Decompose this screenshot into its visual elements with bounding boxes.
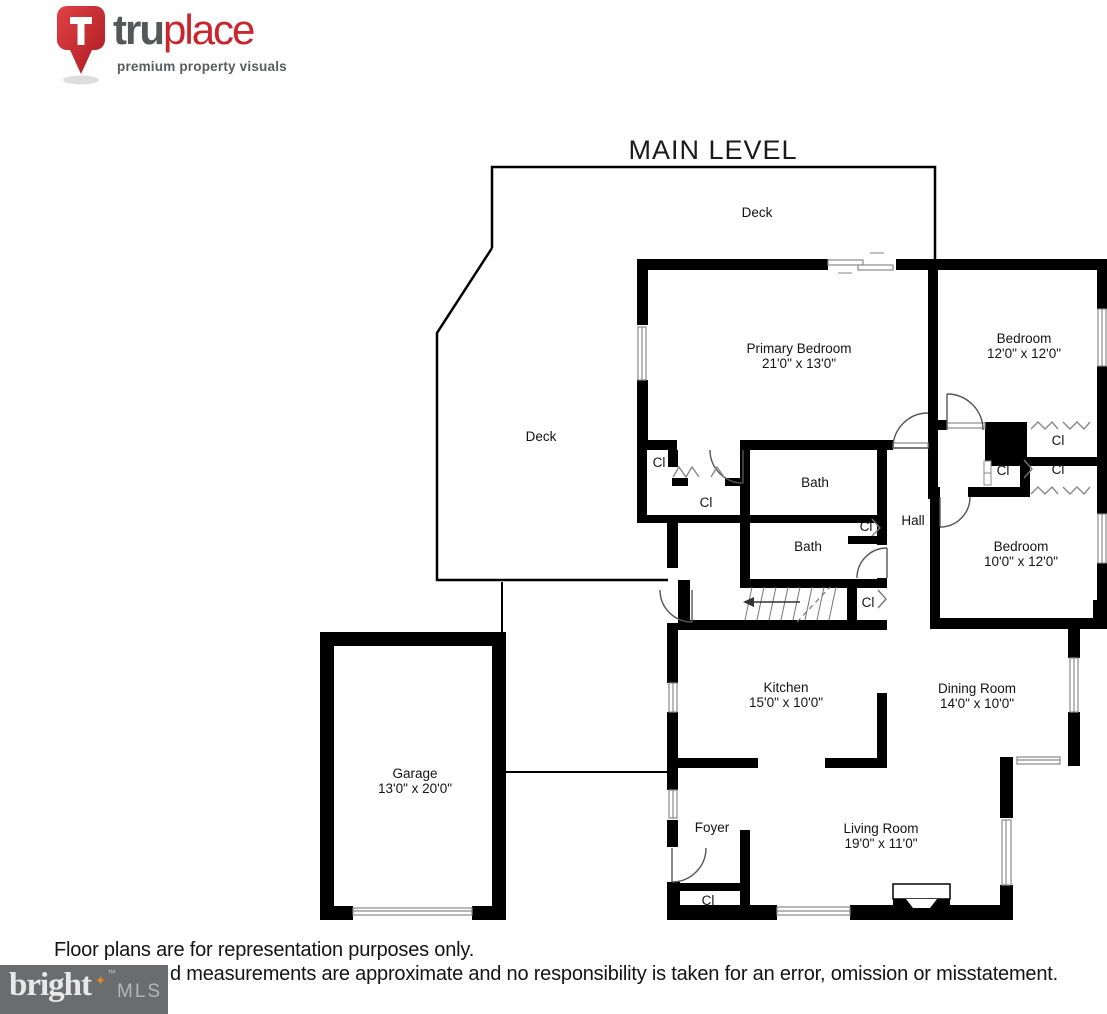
disclaimer-line-2: d measurements are approximate and no re… <box>170 963 1058 986</box>
room-label-foyer: Foyer <box>695 820 730 835</box>
closet-label: Cl <box>1052 433 1065 448</box>
brand-tagline: premium property visuals <box>117 59 287 74</box>
truplace-pin-icon <box>55 2 111 90</box>
room-label-bedroom-2: Bedroom 10'0" x 12'0" <box>984 539 1058 569</box>
bath-2-door <box>857 548 887 578</box>
breezeway-lines <box>502 582 667 772</box>
page-title: MAIN LEVEL <box>628 135 797 166</box>
closet-label: Cl <box>653 455 666 470</box>
disclaimer-line-1: Floor plans are for representation purpo… <box>54 939 474 962</box>
floor-plan-drawing <box>0 0 1107 1014</box>
bright-mls-logo: bright ✦ ™ MLS <box>0 965 168 1014</box>
mls-brand-text: bright <box>9 967 91 1004</box>
closet-door-chevrons <box>872 460 1032 608</box>
room-label-deck-top: Deck <box>742 205 773 220</box>
brand-suffix: place <box>163 6 253 53</box>
stair-direction-arrow <box>743 597 800 607</box>
room-label-hall: Hall <box>901 513 924 528</box>
room-label-living-room: Living Room 19'0" x 11'0" <box>843 821 918 851</box>
closet-label: Cl <box>700 495 713 510</box>
floor-plan-page: truplace premium property visuals MAIN L… <box>0 0 1107 1014</box>
brand-prefix: tru <box>113 6 163 53</box>
room-label-dining-room: Dining Room 14'0" x 10'0" <box>938 681 1016 711</box>
closet-label: Cl <box>997 463 1010 478</box>
closet-label: Cl <box>702 893 715 908</box>
room-label-bath-1: Bath <box>801 475 829 490</box>
staircase <box>743 587 836 622</box>
room-label-kitchen: Kitchen 15'0" x 10'0" <box>749 680 823 710</box>
brand-wordmark: truplace <box>113 8 253 52</box>
closet-shelf-mark <box>984 461 991 485</box>
room-label-bedroom-1: Bedroom 12'0" x 12'0" <box>987 331 1061 361</box>
bedroom-2-door <box>940 497 970 527</box>
room-label-deck-left: Deck <box>526 429 557 444</box>
mls-star-icon: ✦ <box>95 973 106 989</box>
truplace-logo: truplace premium property visuals <box>55 2 335 90</box>
room-label-primary-bedroom: Primary Bedroom 21'0" x 13'0" <box>746 341 851 371</box>
fireplace <box>893 884 950 917</box>
room-label-garage: Garage 13'0" x 20'0" <box>378 766 452 796</box>
mls-suffix-text: MLS <box>117 981 162 1003</box>
mls-trademark: ™ <box>107 968 116 978</box>
front-door <box>672 848 706 882</box>
closet-label: Cl <box>860 519 873 534</box>
closet-label: Cl <box>1052 462 1065 477</box>
closet-label: Cl <box>862 595 875 610</box>
room-label-bath-2: Bath <box>794 539 822 554</box>
